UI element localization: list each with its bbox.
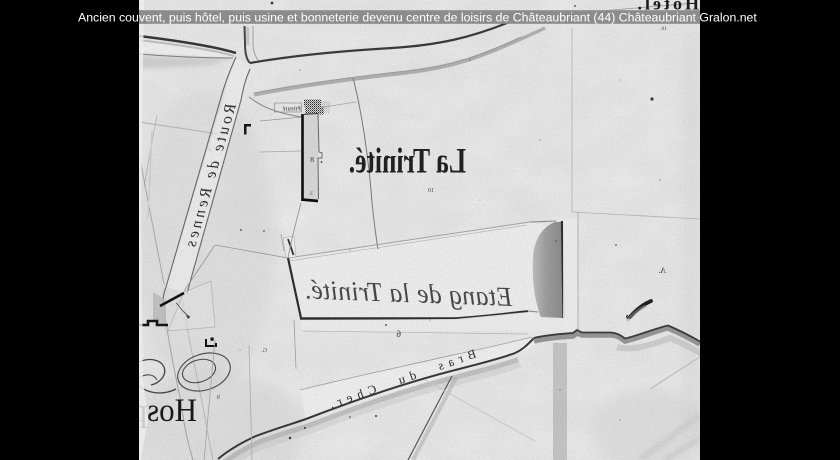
- svg-text:Ancien couvent, puis hôtel, pu: Ancien couvent, puis hôtel, puis usine e…: [78, 10, 757, 24]
